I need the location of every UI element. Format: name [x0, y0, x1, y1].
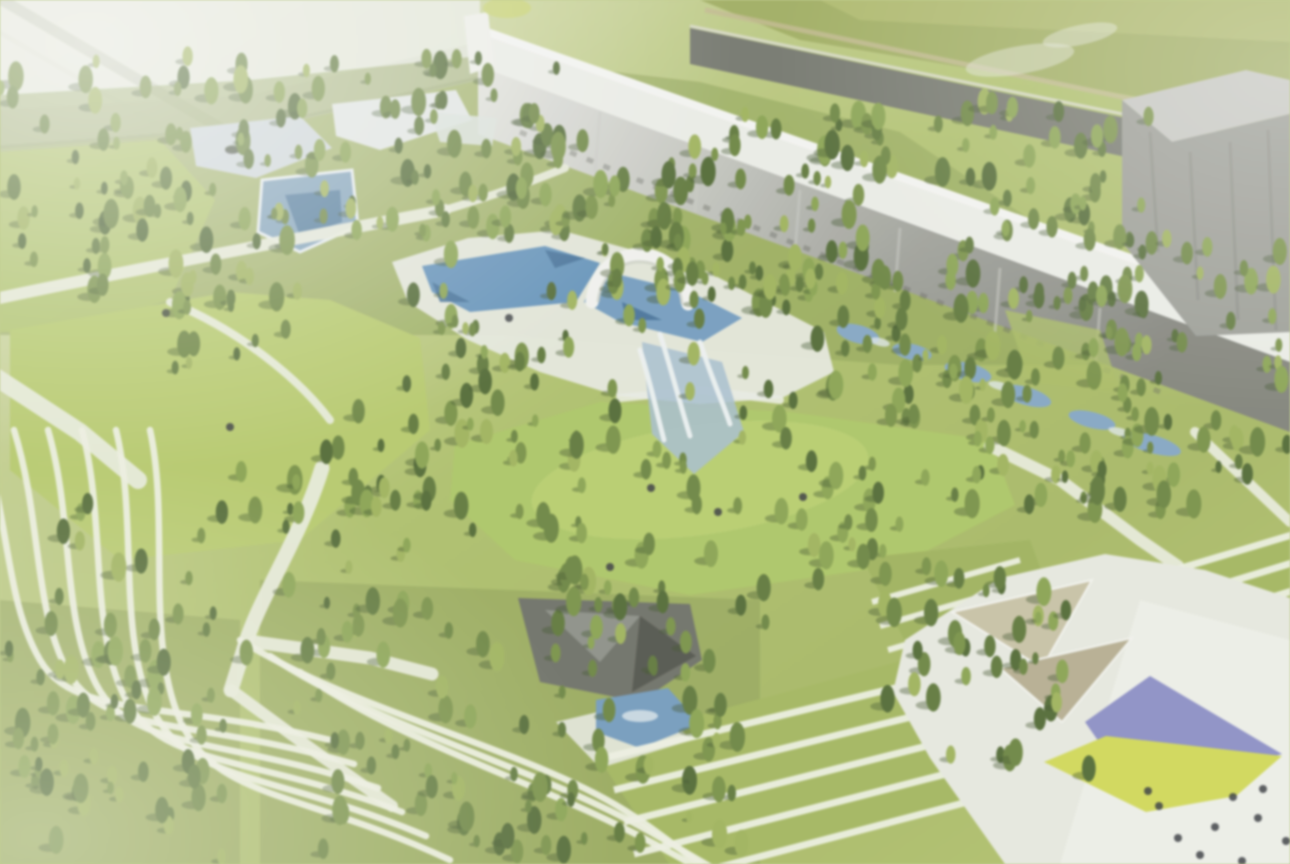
glare-top-right — [0, 0, 1290, 864]
park-aerial-rendering — [0, 0, 1290, 864]
rendering-canvas — [0, 0, 1290, 864]
